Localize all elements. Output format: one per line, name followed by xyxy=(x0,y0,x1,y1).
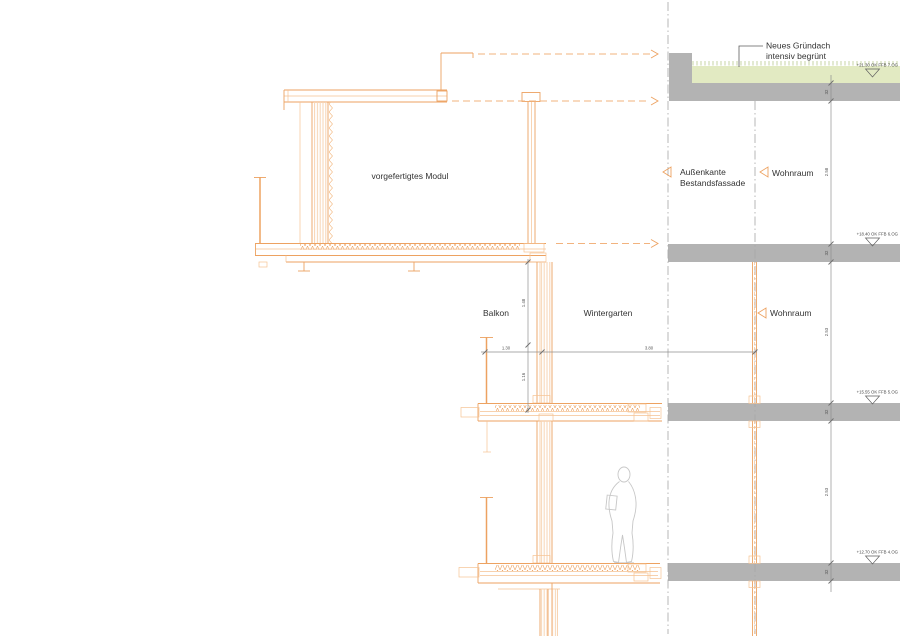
wintergarten-glazing xyxy=(541,262,552,403)
floor-5og xyxy=(480,421,636,563)
wintergarten-label: Wintergarten xyxy=(584,308,633,318)
section-drawing: 1.30 3.80 1.48 1.16 32 2.58 32 2.53 32 2… xyxy=(0,0,900,636)
wohnraum-upper-arrow-icon xyxy=(760,167,768,177)
roof-slab xyxy=(669,83,900,101)
roof-parapet xyxy=(669,53,692,83)
dim-railing-height: 1.16 xyxy=(521,372,526,381)
floor-4og xyxy=(459,564,661,636)
gruendach-label-line2: intensiv begrünt xyxy=(766,51,827,61)
floor-6og xyxy=(461,262,662,452)
level-marker-7og: +21.30 OK FFB 7.OG xyxy=(857,63,899,68)
level-markers: +21.30 OK FFB 7.OG +18.40 OK FFB 6.OG +1… xyxy=(857,63,899,565)
dim-clear-6og: 2.53 xyxy=(824,327,829,336)
drawing-svg: 1.30 3.80 1.48 1.16 32 2.58 32 2.53 32 2… xyxy=(0,0,900,636)
wohnraum-middle-arrow-icon xyxy=(758,308,766,318)
dim-slab-4og: 32 xyxy=(824,569,829,574)
glazing-head-frame xyxy=(522,93,540,102)
dim-slab-roof: 32 xyxy=(824,89,829,94)
dim-clear-5og: 2.53 xyxy=(824,487,829,496)
level-marker-5og: +15.55 OK FFB 5.OG xyxy=(857,390,899,395)
carried-object xyxy=(606,495,617,510)
gruendach-label-line1: Neues Gründach xyxy=(766,41,831,51)
aussenkante-arrow-icon xyxy=(663,167,671,177)
aussenkante-label-line2: Bestandsfassade xyxy=(680,178,745,188)
balkon-label: Balkon xyxy=(483,308,509,318)
wohnraum-upper-label: Wohnraum xyxy=(772,168,813,178)
green-roof xyxy=(692,66,900,83)
level-marker-6og: +18.40 OK FFB 6.OG xyxy=(857,232,899,237)
person-figure xyxy=(606,467,636,563)
dim-upper-height: 1.48 xyxy=(521,298,526,307)
dimensions: 1.30 3.80 1.48 1.16 32 2.58 32 2.53 32 2… xyxy=(481,75,834,592)
dim-wintergarten-width: 3.80 xyxy=(645,346,654,351)
aussenkante-label-line1: Außenkante xyxy=(680,167,726,177)
dim-clear-7og: 2.58 xyxy=(824,167,829,176)
dim-balcony-width: 1.30 xyxy=(502,346,511,351)
slab-4og xyxy=(668,563,900,581)
level-marker-4og: +12.70 OK FFB 4.OG xyxy=(857,550,899,555)
slab-5og xyxy=(668,403,900,421)
dim-slab-6og: 32 xyxy=(824,250,829,255)
wall-hatch xyxy=(313,102,327,243)
module-label: vorgefertigtes Modul xyxy=(371,171,448,181)
wohnraum-middle-label: Wohnraum xyxy=(770,308,811,318)
dim-slab-5og: 32 xyxy=(824,409,829,414)
module-7og xyxy=(254,50,658,271)
slab-6og xyxy=(668,244,900,262)
insulation xyxy=(329,102,334,243)
